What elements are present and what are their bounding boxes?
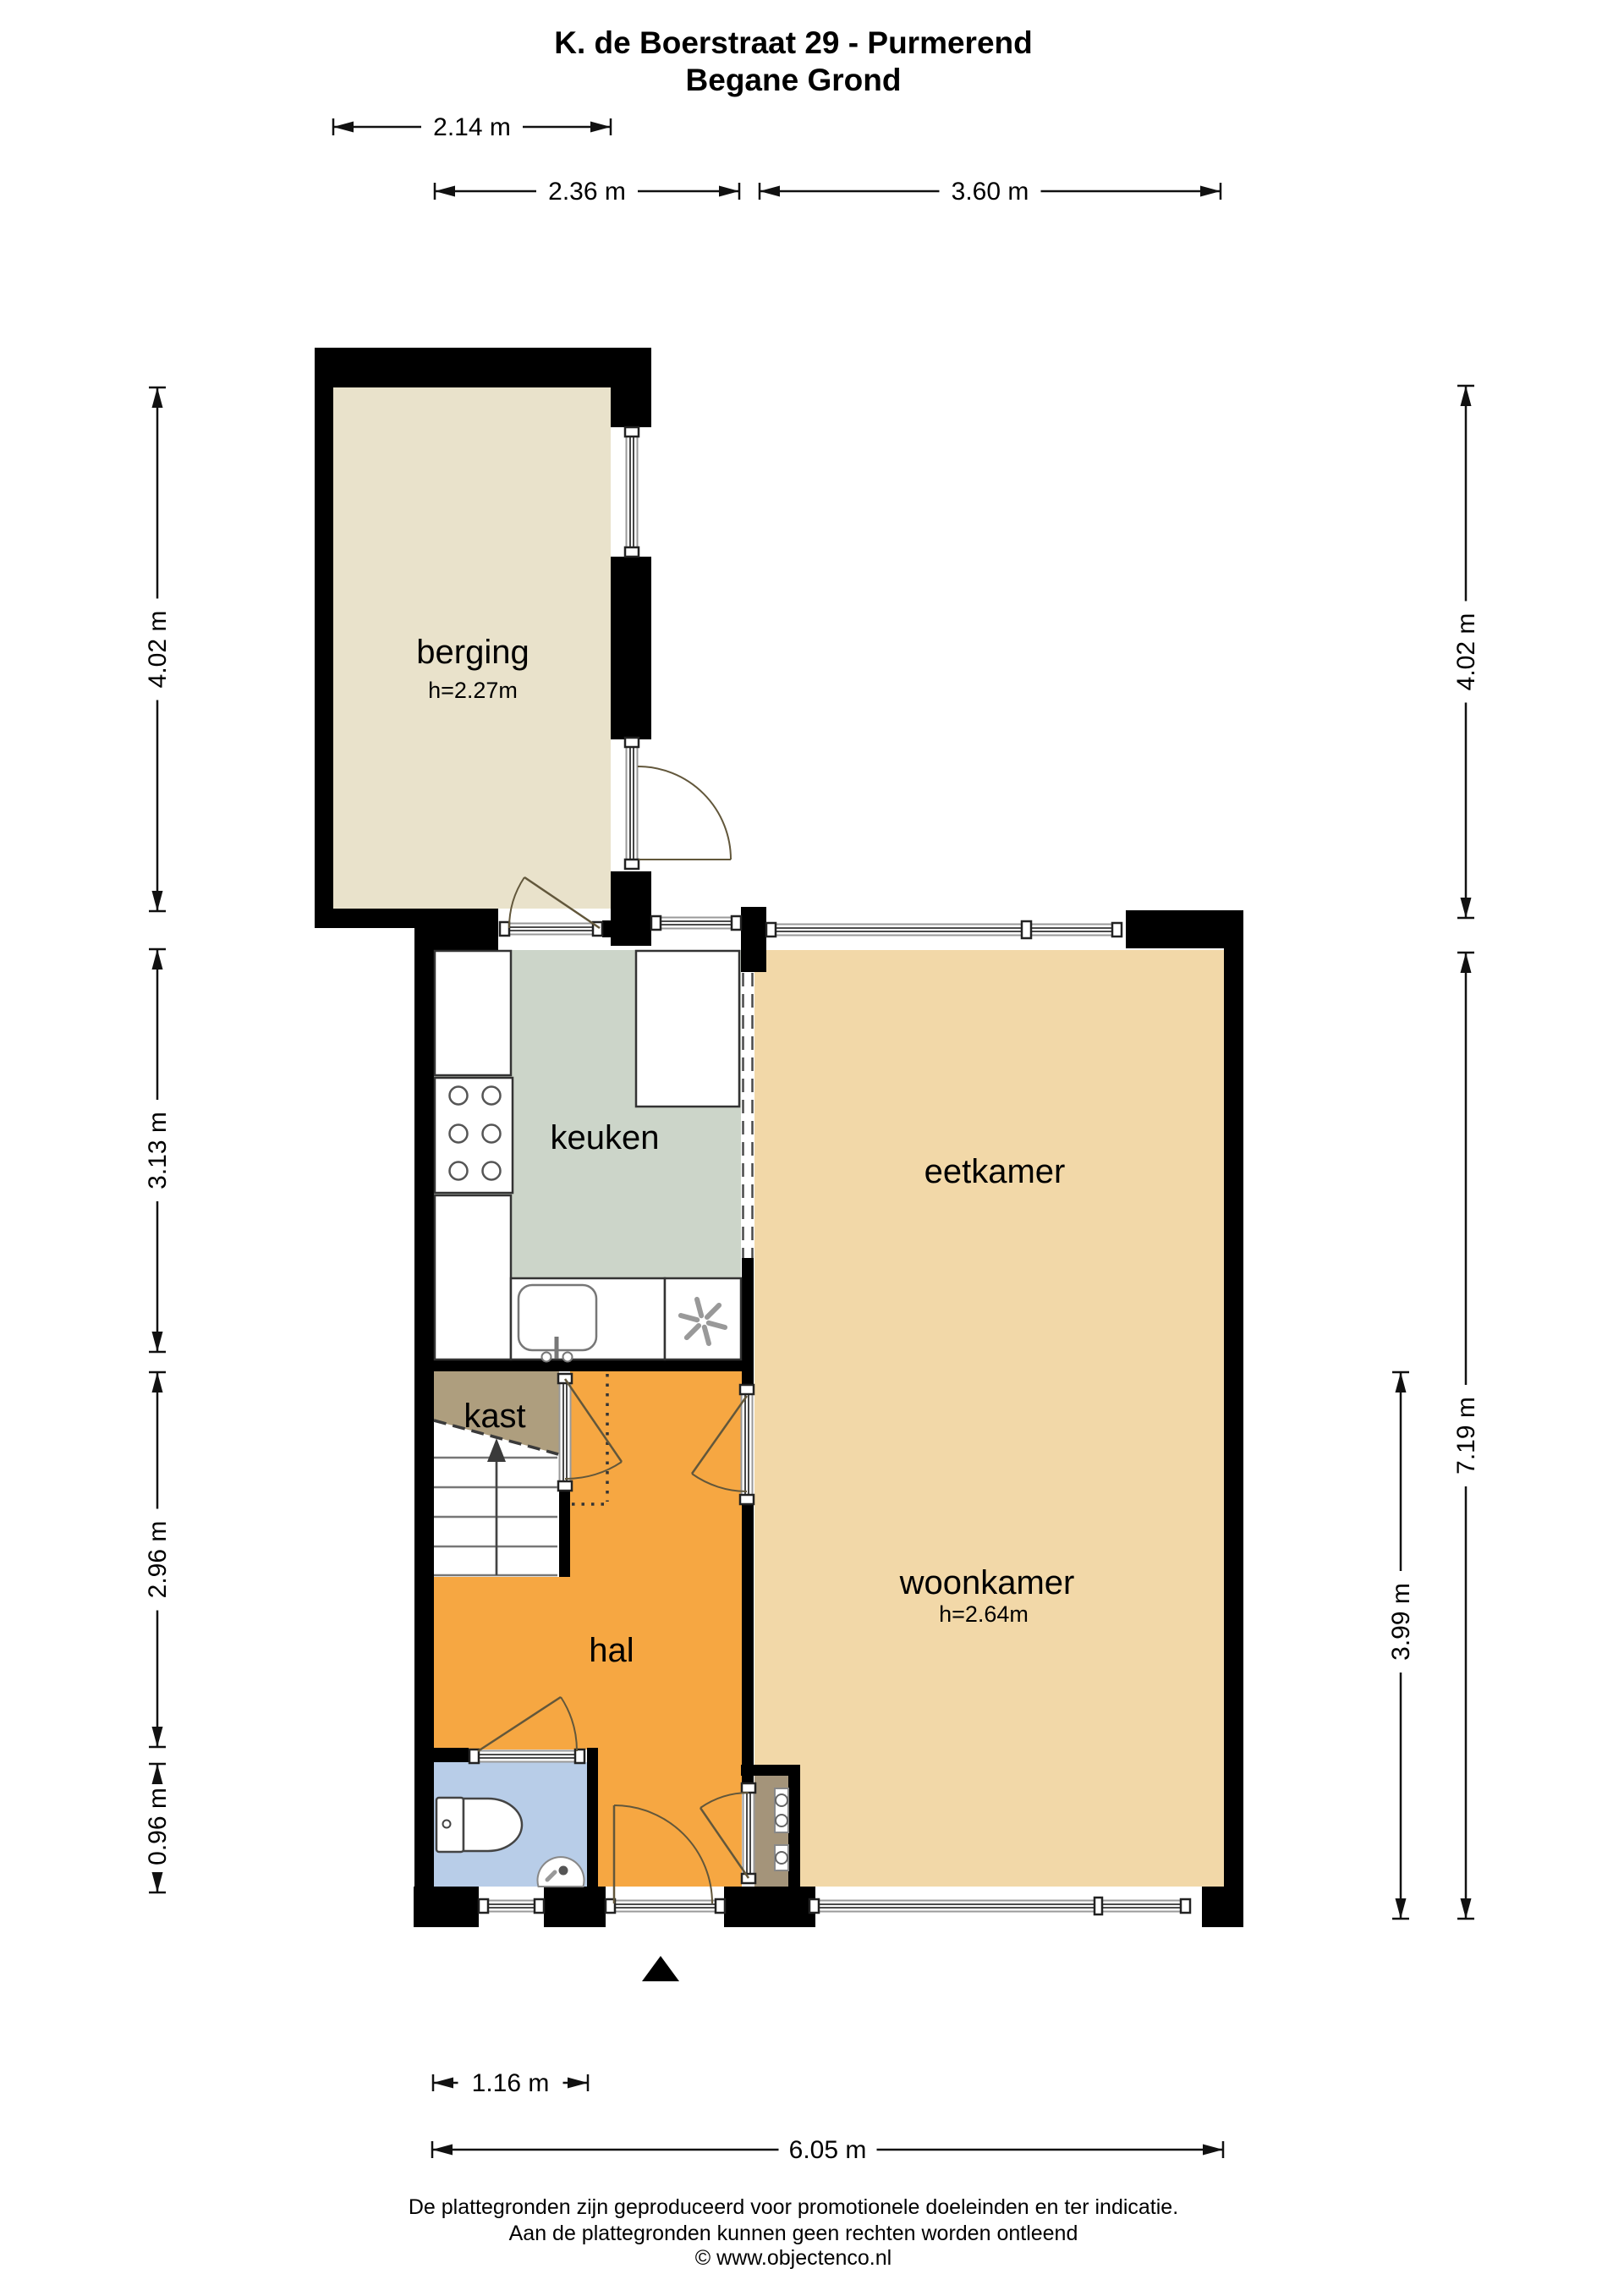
svg-text:De plattegronden zijn geproduc: De plattegronden zijn geproduceerd voor … xyxy=(409,2195,1178,2219)
svg-text:woonkamer: woonkamer xyxy=(899,1564,1075,1601)
svg-text:2.36 m: 2.36 m xyxy=(548,178,626,206)
svg-text:Aan de plattegronden kunnen ge: Aan de plattegronden kunnen geen rechten… xyxy=(509,2222,1078,2245)
svg-text:h=2.64m: h=2.64m xyxy=(939,1601,1029,1627)
svg-text:7.19 m: 7.19 m xyxy=(1452,1397,1480,1475)
svg-text:3.60 m: 3.60 m xyxy=(952,178,1029,206)
svg-text:3.13 m: 3.13 m xyxy=(144,1112,172,1189)
svg-text:Begane Grond: Begane Grond xyxy=(686,63,902,97)
svg-text:K. de Boerstraat 29 - Purmeren: K. de Boerstraat 29 - Purmerend xyxy=(554,25,1032,60)
svg-text:h=2.27m: h=2.27m xyxy=(428,678,518,703)
svg-text:2.96 m: 2.96 m xyxy=(144,1521,172,1599)
svg-text:eetkamer: eetkamer xyxy=(924,1153,1066,1190)
svg-text:2.14 m: 2.14 m xyxy=(433,113,511,141)
svg-text:0.96 m: 0.96 m xyxy=(144,1788,172,1865)
svg-text:kast: kast xyxy=(464,1398,525,1435)
svg-text:hal: hal xyxy=(589,1632,634,1669)
svg-text:© www.objectenco.nl: © www.objectenco.nl xyxy=(695,2246,892,2270)
svg-text:keuken: keuken xyxy=(551,1119,660,1156)
svg-text:4.02 m: 4.02 m xyxy=(1452,613,1480,691)
svg-text:berging: berging xyxy=(416,634,529,671)
svg-text:4.02 m: 4.02 m xyxy=(144,611,172,689)
svg-text:1.16 m: 1.16 m xyxy=(472,2069,550,2097)
svg-text:6.05 m: 6.05 m xyxy=(789,2136,867,2164)
svg-text:3.99 m: 3.99 m xyxy=(1387,1583,1415,1661)
